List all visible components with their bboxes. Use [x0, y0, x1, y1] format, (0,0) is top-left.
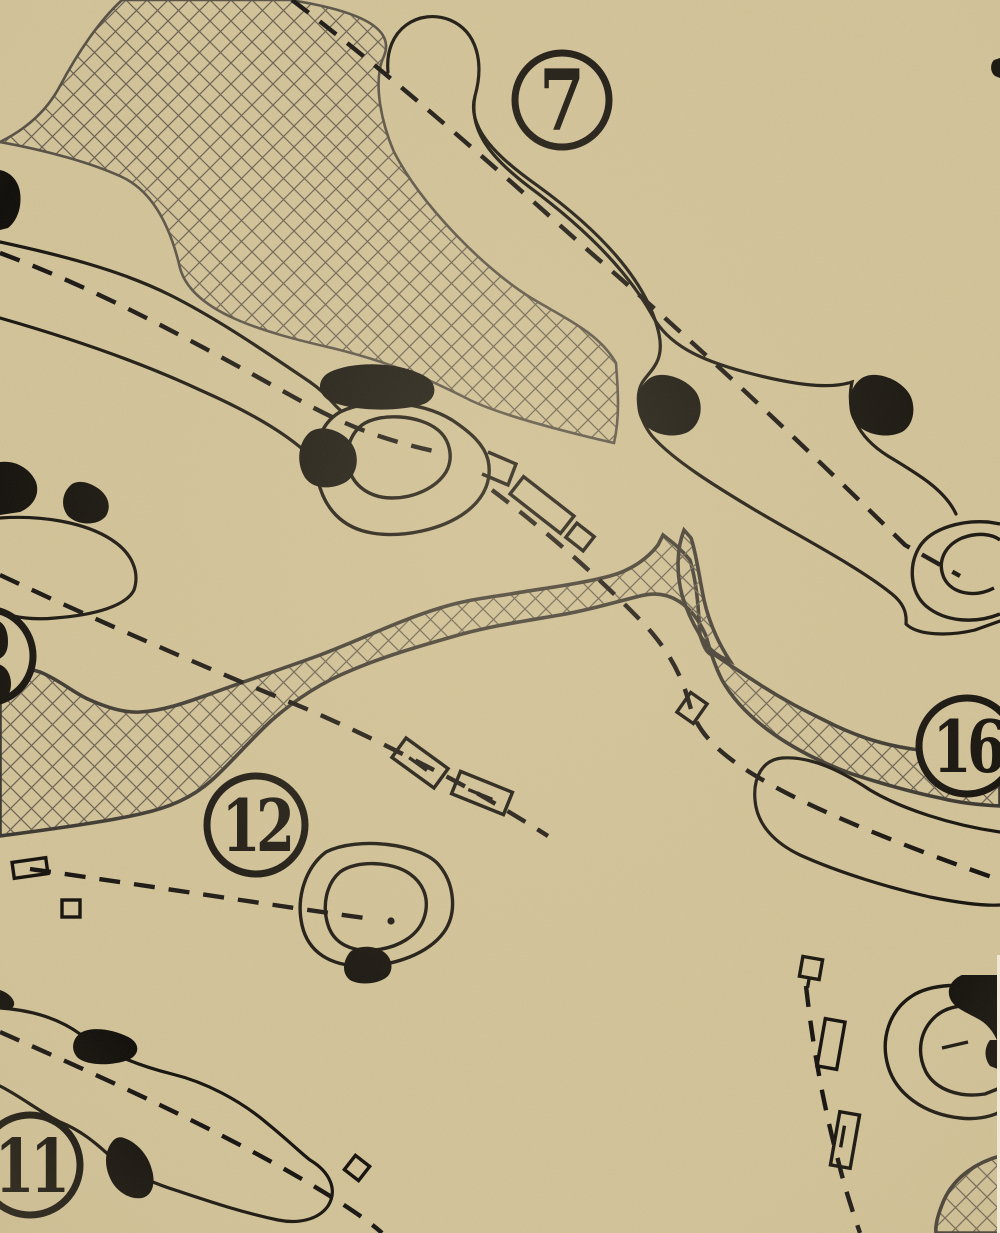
- golf-course-map: 7 12 16 11: [0, 0, 1000, 1233]
- paper-vignette: [0, 0, 1000, 1233]
